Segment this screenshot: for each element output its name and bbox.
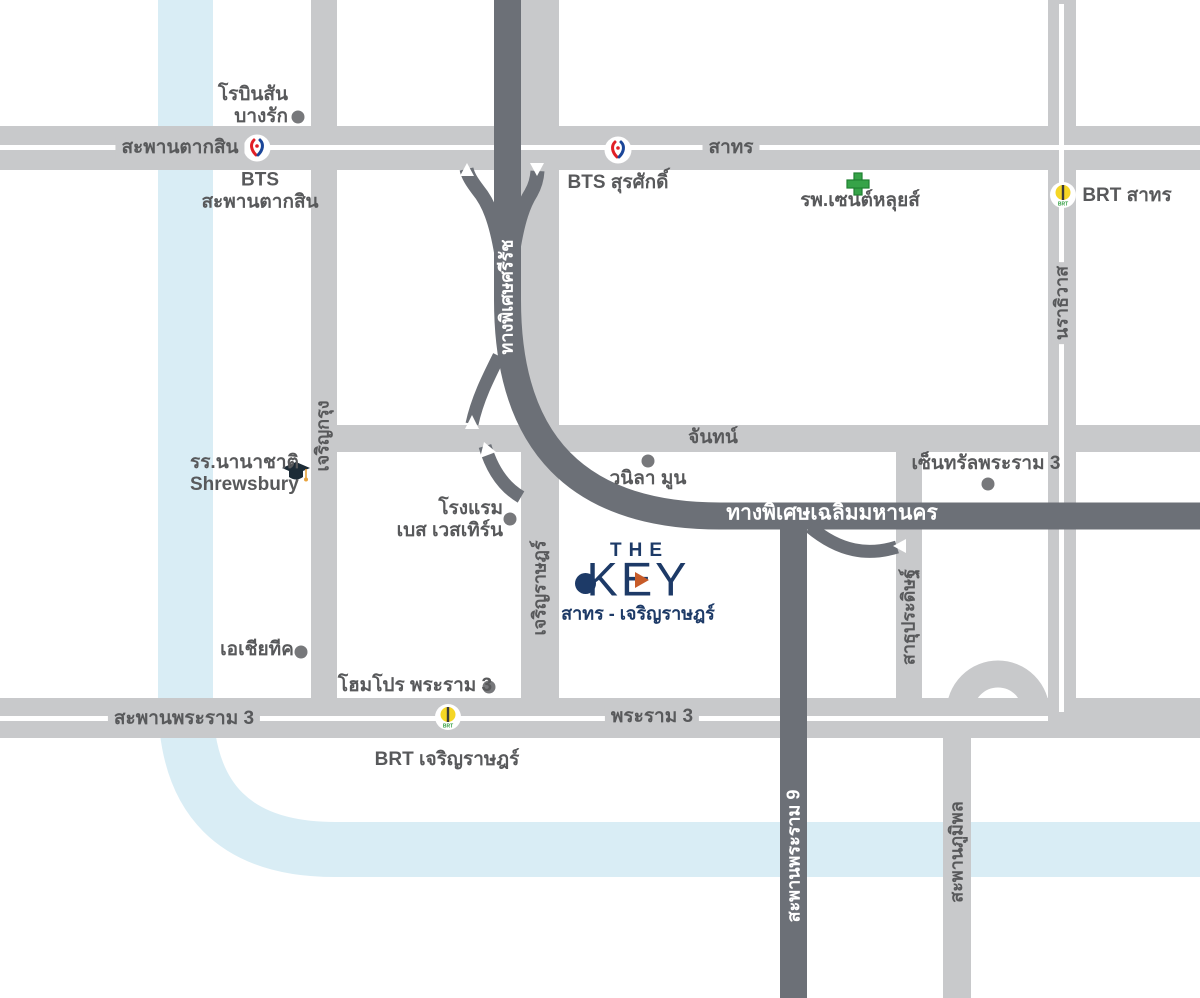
brt-charoen-rat-icon: BRT <box>435 704 461 730</box>
best-western-label: โรงแรม เบส เวสเทิร์น <box>391 498 503 543</box>
road-label-expressway-chalerm-mahanakhon: ทางพิเศษเฉลิมมหานคร <box>726 502 937 527</box>
vanilla-moon-dot <box>642 455 655 468</box>
st-louis-hospital-label: รพ.เซนต์หลุยส์ <box>800 190 920 212</box>
expressway-ramp-chalerm-exit <box>810 527 897 551</box>
road-label-charoen-rat: เจริญราษฎร์ <box>529 540 550 635</box>
road-label-charoen-krung: เจริญกรุง <box>312 400 333 471</box>
bts-surasak-label: BTS สุรศักดิ์ <box>568 172 669 194</box>
logo-subtitle: สาทร - เจริญราษฎร์ <box>561 599 715 628</box>
robinson-dot <box>292 111 305 124</box>
central-rama3-dot <box>982 478 995 491</box>
asiatique-dot <box>295 646 308 659</box>
central-rama3-label: เซ็นทรัลพระราม 3 <box>912 453 1061 475</box>
road-charoen-krung <box>311 0 337 738</box>
road-label-saphan-taksin: สะพานตากสิน <box>115 137 244 159</box>
brt-sathorn-label: BRT สาทร <box>1082 185 1171 207</box>
road-label-saphan-rama-3: สะพานพระราม 3 <box>108 708 260 730</box>
vanilla-moon-label: วนิลา มูน <box>610 468 687 490</box>
brt-charoen-rat-label: BRT เจริญราษฎร์ <box>375 749 520 771</box>
robinson-label: โรบินสัน บางรัก <box>188 84 288 129</box>
road-label-sathu-pradit: สาธุประดิษฐ์ <box>898 569 919 665</box>
bts-surasak-icon <box>605 137 632 164</box>
road-label-sathorn: สาทร <box>703 137 760 159</box>
shrewsbury-label: รร.นานาชาติ Shrewsbury <box>190 452 299 497</box>
bts-saphan-taksin-icon <box>244 135 271 162</box>
road-label-expressway-si-rat: ทางพิเศษศรีรัช <box>496 239 517 354</box>
road-label-rama-3: พระราม 3 <box>605 706 699 728</box>
road-label-saphan-rama-9: สะพานพระราม 9 <box>783 790 804 923</box>
road-saphan-rama-9 <box>780 510 807 998</box>
road-label-saphan-bhumibol: สะพานภูมิพล <box>946 801 967 903</box>
median-narathiwat <box>1059 4 1064 712</box>
logo-triangle-icon <box>635 572 649 588</box>
svg-text:BRT: BRT <box>443 724 453 730</box>
brt-sathorn-icon: BRT <box>1050 182 1076 208</box>
best-western-dot <box>504 513 517 526</box>
expressway-ramp-mid-upper <box>472 356 499 424</box>
homepro-label: โฮมโปร พระราม 3 <box>338 675 492 697</box>
bts-saphan-taksin-label: BTS สะพานตากสิน <box>201 170 318 215</box>
road-label-chan: จันทน์ <box>688 427 738 449</box>
road-chan <box>311 425 1200 452</box>
location-map: BRT BRT สะพานตากสิน สาทร จันทน์ พระราม 3 <box>0 0 1200 998</box>
road-label-narathiwat: นราธิวาส <box>1051 262 1072 344</box>
svg-text:BRT: BRT <box>1058 202 1068 208</box>
asiatique-label: เอเชียทีค <box>220 639 294 661</box>
